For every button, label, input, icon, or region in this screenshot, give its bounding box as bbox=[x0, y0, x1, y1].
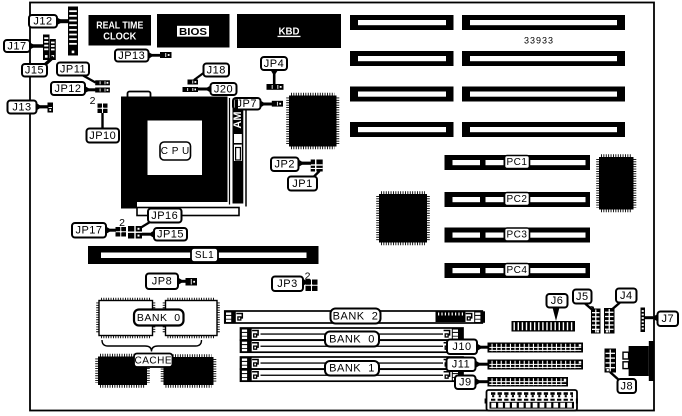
svg-text:PC1: PC1 bbox=[507, 157, 528, 168]
svg-text:J4: J4 bbox=[620, 290, 633, 302]
svg-text:BIOS: BIOS bbox=[179, 26, 207, 38]
svg-text:J17: J17 bbox=[7, 40, 26, 52]
svg-text:BANK 2: BANK 2 bbox=[333, 310, 379, 322]
svg-text:JP4: JP4 bbox=[264, 58, 284, 70]
svg-text:PC4: PC4 bbox=[507, 265, 528, 276]
svg-text:J8: J8 bbox=[620, 380, 633, 392]
svg-text:JP15: JP15 bbox=[157, 229, 184, 241]
svg-text:J5: J5 bbox=[576, 291, 589, 303]
svg-text:JP10: JP10 bbox=[89, 130, 116, 142]
svg-text:REAL TIME: REAL TIME bbox=[96, 21, 143, 32]
svg-text:JP3: JP3 bbox=[277, 278, 297, 290]
svg-text:AM: AM bbox=[232, 111, 244, 128]
svg-text:J12: J12 bbox=[33, 16, 52, 28]
svg-text:J9: J9 bbox=[459, 377, 472, 389]
svg-text:J6: J6 bbox=[551, 295, 564, 307]
svg-text:JP17: JP17 bbox=[75, 225, 102, 237]
svg-text:J7: J7 bbox=[661, 313, 674, 325]
svg-text:J13: J13 bbox=[12, 101, 31, 113]
svg-text:J11: J11 bbox=[452, 359, 470, 371]
svg-text:SL1: SL1 bbox=[195, 250, 214, 261]
svg-text:J20: J20 bbox=[214, 83, 233, 95]
svg-text:33933: 33933 bbox=[524, 36, 554, 46]
svg-text:JP8: JP8 bbox=[152, 276, 172, 288]
svg-text:BANK 0: BANK 0 bbox=[137, 312, 181, 324]
svg-text:PC2: PC2 bbox=[507, 194, 528, 205]
svg-text:JP13: JP13 bbox=[118, 50, 145, 62]
svg-text:JP11: JP11 bbox=[60, 63, 86, 75]
svg-text:JP16: JP16 bbox=[151, 210, 178, 222]
svg-text:JP12: JP12 bbox=[54, 83, 81, 95]
svg-text:2: 2 bbox=[90, 95, 96, 107]
svg-text:J18: J18 bbox=[207, 64, 226, 76]
svg-text:JP1: JP1 bbox=[292, 178, 312, 190]
svg-text:BANK 1: BANK 1 bbox=[329, 363, 375, 375]
svg-text:CACHE: CACHE bbox=[134, 355, 172, 366]
svg-text:PC3: PC3 bbox=[507, 230, 528, 241]
svg-text:KBD: KBD bbox=[279, 26, 300, 38]
svg-text:J10: J10 bbox=[452, 341, 471, 353]
svg-text:BANK 0: BANK 0 bbox=[329, 333, 375, 345]
svg-text:C P U: C P U bbox=[161, 146, 190, 157]
svg-text:J15: J15 bbox=[25, 65, 44, 77]
svg-text:JP7: JP7 bbox=[237, 98, 257, 110]
svg-text:JP2: JP2 bbox=[275, 159, 295, 171]
svg-text:CLOCK: CLOCK bbox=[103, 32, 137, 43]
